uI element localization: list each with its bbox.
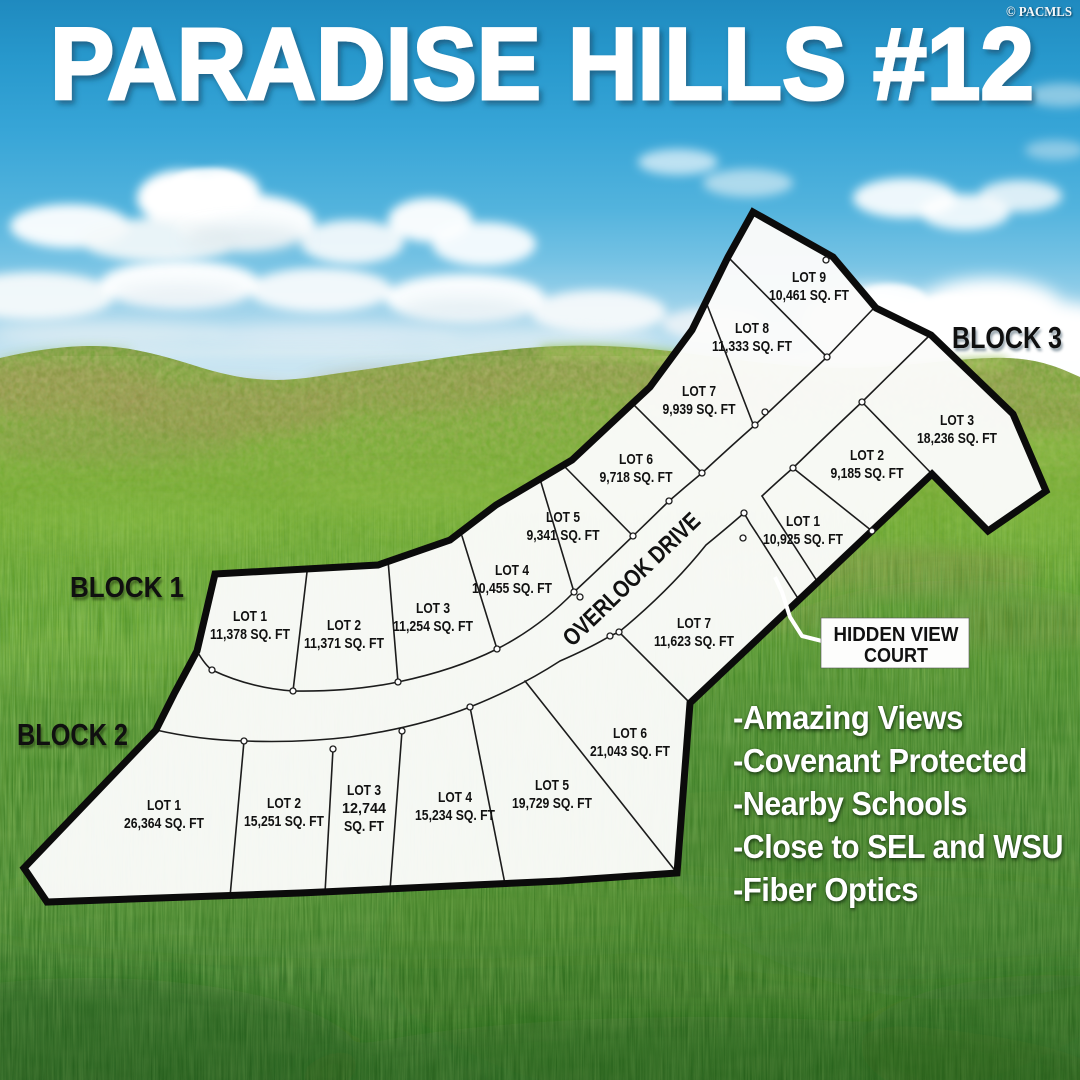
- svg-text:LOT 6: LOT 6: [613, 725, 647, 742]
- svg-text:12,744: 12,744: [342, 800, 387, 817]
- svg-text:10,461 SQ. FT: 10,461 SQ. FT: [769, 287, 849, 304]
- svg-text:11,371 SQ. FT: 11,371 SQ. FT: [304, 635, 384, 652]
- svg-text:LOT 2: LOT 2: [850, 447, 884, 464]
- svg-text:LOT 2: LOT 2: [327, 617, 361, 634]
- svg-text:LOT 1: LOT 1: [233, 608, 267, 625]
- svg-text:LOT 7: LOT 7: [682, 383, 716, 400]
- svg-text:-Close to SEL and WSU: -Close to SEL and WSU: [733, 828, 1063, 865]
- svg-text:15,234 SQ. FT: 15,234 SQ. FT: [415, 807, 495, 824]
- svg-text:18,236 SQ. FT: 18,236 SQ. FT: [917, 430, 997, 447]
- svg-text:BLOCK 1: BLOCK 1: [70, 572, 184, 604]
- svg-text:LOT 9: LOT 9: [792, 269, 826, 286]
- svg-text:-Nearby Schools: -Nearby Schools: [733, 785, 967, 822]
- svg-text:LOT 4: LOT 4: [438, 789, 473, 806]
- svg-text:15,251 SQ. FT: 15,251 SQ. FT: [244, 813, 324, 830]
- svg-text:LOT 3: LOT 3: [347, 782, 381, 799]
- svg-text:-Amazing Views: -Amazing Views: [733, 699, 963, 736]
- svg-text:11,254 SQ. FT: 11,254 SQ. FT: [393, 618, 473, 635]
- svg-text:26,364 SQ. FT: 26,364 SQ. FT: [124, 815, 204, 832]
- svg-text:LOT 1: LOT 1: [786, 513, 820, 530]
- svg-text:11,378 SQ. FT: 11,378 SQ. FT: [210, 626, 290, 643]
- svg-text:BLOCK 3: BLOCK 3: [952, 320, 1062, 355]
- svg-text:SQ. FT: SQ. FT: [344, 818, 384, 835]
- svg-text:9,185 SQ. FT: 9,185 SQ. FT: [831, 465, 904, 482]
- svg-text:© PACMLS: © PACMLS: [1006, 5, 1072, 20]
- svg-text:LOT 5: LOT 5: [546, 509, 580, 526]
- svg-text:LOT 3: LOT 3: [940, 412, 974, 429]
- svg-text:10,925 SQ. FT: 10,925 SQ. FT: [763, 531, 843, 548]
- svg-text:LOT 7: LOT 7: [677, 615, 711, 632]
- svg-text:9,341 SQ. FT: 9,341 SQ. FT: [527, 527, 600, 544]
- svg-text:LOT 1: LOT 1: [147, 797, 181, 814]
- svg-text:LOT 6: LOT 6: [619, 451, 653, 468]
- svg-text:LOT 4: LOT 4: [495, 562, 530, 579]
- svg-text:9,939 SQ. FT: 9,939 SQ. FT: [663, 401, 736, 418]
- svg-text:LOT 2: LOT 2: [267, 795, 301, 812]
- svg-text:-Covenant Protected: -Covenant Protected: [733, 742, 1027, 779]
- svg-text:21,043 SQ. FT: 21,043 SQ. FT: [590, 743, 670, 760]
- svg-text:PARADISE HILLS #12: PARADISE HILLS #12: [50, 7, 1034, 121]
- svg-text:10,455 SQ. FT: 10,455 SQ. FT: [472, 580, 552, 597]
- svg-text:HIDDEN VIEW: HIDDEN VIEW: [834, 624, 959, 646]
- svg-text:19,729 SQ. FT: 19,729 SQ. FT: [512, 795, 592, 812]
- svg-text:LOT 3: LOT 3: [416, 600, 450, 617]
- svg-text:-Fiber Optics: -Fiber Optics: [733, 871, 918, 908]
- svg-text:11,623 SQ. FT: 11,623 SQ. FT: [654, 633, 734, 650]
- svg-text:11,333 SQ. FT: 11,333 SQ. FT: [712, 338, 792, 355]
- svg-text:9,718 SQ. FT: 9,718 SQ. FT: [600, 469, 673, 486]
- svg-text:COURT: COURT: [864, 645, 928, 667]
- svg-text:BLOCK 2: BLOCK 2: [17, 717, 128, 752]
- svg-text:LOT 8: LOT 8: [735, 320, 769, 337]
- svg-text:LOT 5: LOT 5: [535, 777, 569, 794]
